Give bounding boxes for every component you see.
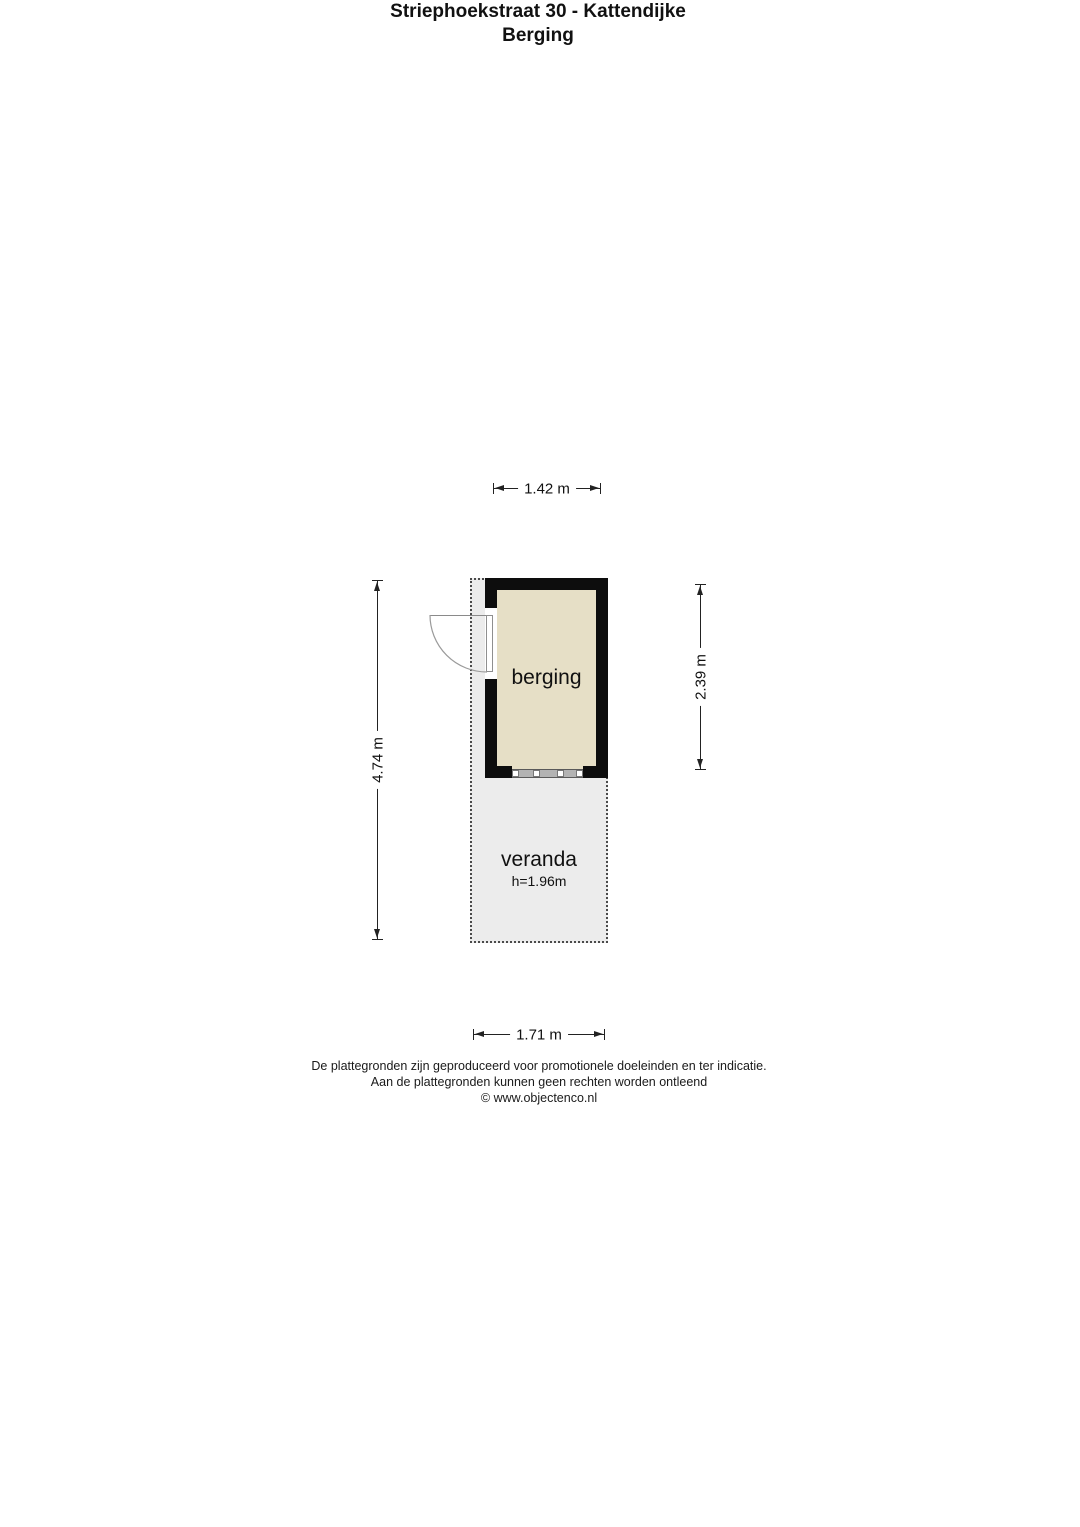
arrow-down-icon <box>697 759 703 768</box>
dimension-bottom-width: 1.71 m <box>473 1027 605 1043</box>
window-mullion-icon <box>576 770 583 777</box>
dimension-tick <box>372 580 383 581</box>
dimension-tick <box>473 1029 474 1040</box>
arrow-left-icon <box>495 485 504 491</box>
arrow-down-icon <box>374 929 380 938</box>
arrow-up-icon <box>697 586 703 595</box>
dimension-tick <box>600 483 601 494</box>
dimension-right-height: 2.39 m <box>693 584 709 770</box>
dimension-right-label: 2.39 m <box>693 648 710 706</box>
dimension-tick <box>372 939 383 940</box>
footer-line3: © www.objectenco.nl <box>0 1090 1078 1106</box>
window-glass-band <box>512 769 583 778</box>
veranda-label: veranda <box>470 848 608 872</box>
window-mullion-icon <box>533 770 540 777</box>
dimension-top-width: 1.42 m <box>493 481 601 497</box>
page-title-line2: Berging <box>0 24 1076 48</box>
dimension-tick <box>604 1029 605 1040</box>
dimension-bottom-label: 1.71 m <box>510 1027 568 1044</box>
berging-room: berging <box>485 578 608 778</box>
window-mullion-icon <box>557 770 564 777</box>
footer-line1: De plattegronden zijn geproduceerd voor … <box>0 1058 1078 1074</box>
footer-line2: Aan de plattegronden kunnen geen rechten… <box>0 1074 1078 1090</box>
door-swing-arc-icon <box>425 610 495 680</box>
page-title: Striephoekstraat 30 - Kattendijke Bergin… <box>0 0 1076 48</box>
arrow-left-icon <box>475 1031 484 1037</box>
arrow-right-icon <box>590 485 599 491</box>
window-mullion-icon <box>512 770 519 777</box>
dimension-tick <box>695 769 706 770</box>
footer-disclaimer: De plattegronden zijn geproduceerd voor … <box>0 1058 1078 1106</box>
arrow-right-icon <box>594 1031 603 1037</box>
berging-window <box>512 766 583 778</box>
veranda-labels: veranda h=1.96m <box>470 848 608 890</box>
dimension-tick <box>695 584 706 585</box>
dimension-left-height: 4.74 m <box>370 580 386 940</box>
veranda-height-label: h=1.96m <box>470 872 608 890</box>
page-title-line1: Striephoekstraat 30 - Kattendijke <box>0 0 1076 24</box>
dimension-top-label: 1.42 m <box>518 481 576 498</box>
dimension-tick <box>493 483 494 494</box>
dimension-left-label: 4.74 m <box>370 731 387 789</box>
berging-floor: berging <box>497 590 596 766</box>
arrow-up-icon <box>374 582 380 591</box>
berging-label: berging <box>511 666 581 690</box>
